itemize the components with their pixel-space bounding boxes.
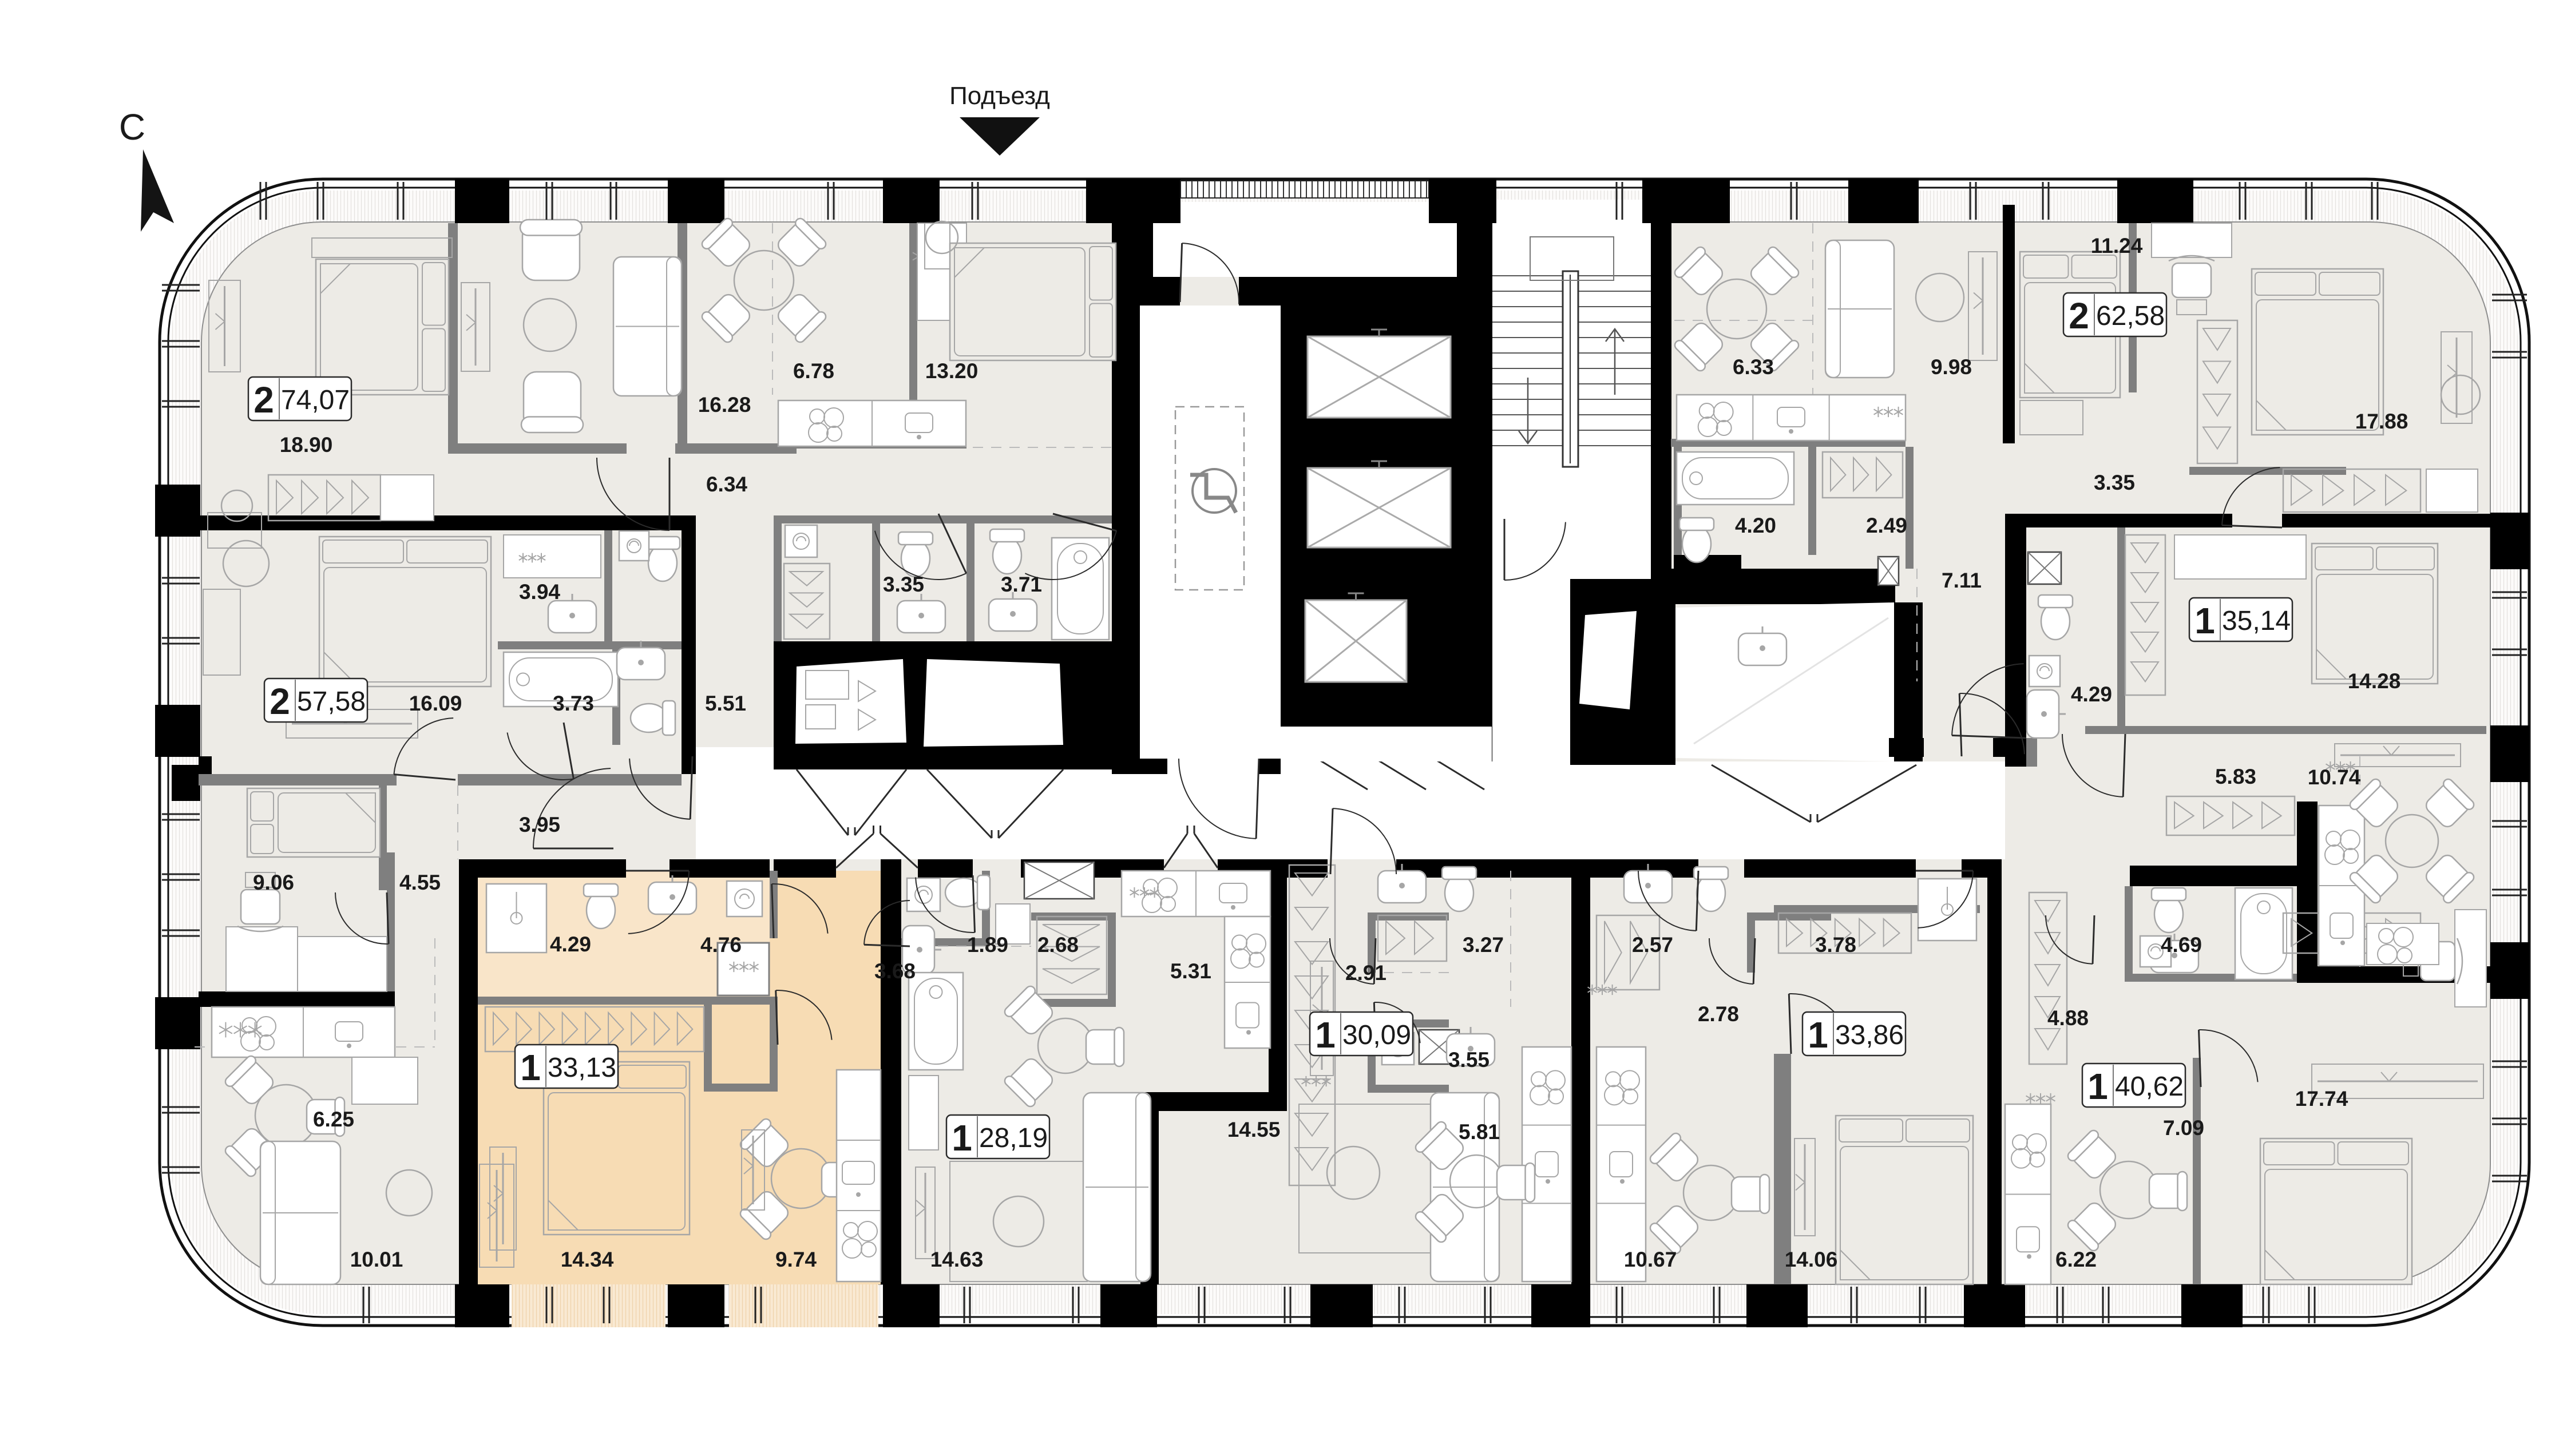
- svg-text:10.74: 10.74: [2308, 765, 2361, 789]
- svg-text:6.22: 6.22: [2055, 1248, 2097, 1271]
- svg-text:4.69: 4.69: [2161, 933, 2202, 957]
- svg-text:3.68: 3.68: [874, 959, 916, 983]
- svg-text:4.76: 4.76: [700, 933, 742, 957]
- svg-text:2.68: 2.68: [1037, 933, 1079, 957]
- svg-text:30,09: 30,09: [1342, 1020, 1411, 1050]
- svg-text:2.57: 2.57: [1632, 933, 1673, 957]
- svg-text:5.31: 5.31: [1170, 959, 1211, 983]
- svg-text:2: 2: [253, 379, 274, 420]
- svg-text:10.67: 10.67: [1624, 1248, 1677, 1271]
- svg-text:6.78: 6.78: [793, 359, 834, 383]
- svg-text:1: 1: [1808, 1014, 1828, 1056]
- svg-text:11.24: 11.24: [2091, 234, 2143, 257]
- svg-text:3.27: 3.27: [1463, 933, 1504, 957]
- svg-text:2.91: 2.91: [1345, 961, 1387, 985]
- svg-text:6.25: 6.25: [313, 1108, 354, 1131]
- svg-text:1: 1: [952, 1117, 972, 1159]
- svg-text:2: 2: [2069, 295, 2089, 336]
- svg-text:57,58: 57,58: [297, 687, 366, 717]
- svg-text:3.35: 3.35: [883, 573, 924, 596]
- svg-text:5.51: 5.51: [705, 692, 746, 715]
- svg-text:3.71: 3.71: [1001, 573, 1042, 596]
- svg-text:4.29: 4.29: [2071, 683, 2112, 706]
- svg-text:5.81: 5.81: [1459, 1120, 1500, 1144]
- svg-text:3.55: 3.55: [1448, 1048, 1490, 1072]
- svg-text:74,07: 74,07: [281, 385, 350, 415]
- svg-text:3.94: 3.94: [519, 580, 560, 604]
- svg-text:18.90: 18.90: [280, 433, 333, 457]
- svg-text:1.89: 1.89: [967, 933, 1008, 957]
- svg-text:40,62: 40,62: [2115, 1072, 2184, 1102]
- svg-text:17.74: 17.74: [2295, 1087, 2348, 1110]
- svg-text:1: 1: [520, 1047, 541, 1088]
- svg-text:62,58: 62,58: [2096, 301, 2165, 331]
- svg-text:2: 2: [270, 681, 290, 722]
- svg-text:1: 1: [1315, 1014, 1336, 1056]
- svg-text:9.74: 9.74: [775, 1248, 817, 1271]
- svg-text:9.98: 9.98: [1931, 355, 1972, 379]
- svg-text:10.01: 10.01: [350, 1248, 403, 1271]
- svg-text:7.11: 7.11: [1942, 569, 1982, 592]
- svg-text:3.35: 3.35: [2094, 471, 2135, 494]
- svg-text:9.06: 9.06: [253, 871, 294, 894]
- svg-text:14.06: 14.06: [1785, 1248, 1838, 1271]
- svg-text:2.49: 2.49: [1866, 514, 1907, 537]
- svg-text:7.09: 7.09: [2163, 1116, 2204, 1140]
- svg-text:17.88: 17.88: [2355, 410, 2408, 433]
- svg-text:6.34: 6.34: [706, 473, 747, 496]
- svg-text:16.09: 16.09: [409, 692, 462, 715]
- svg-text:4.29: 4.29: [550, 933, 591, 956]
- svg-text:14.34: 14.34: [561, 1248, 614, 1271]
- svg-text:3.78: 3.78: [1815, 933, 1856, 957]
- svg-text:14.28: 14.28: [2348, 669, 2401, 693]
- svg-text:4.88: 4.88: [2047, 1006, 2089, 1030]
- svg-text:16.28: 16.28: [698, 393, 751, 416]
- svg-text:1: 1: [2087, 1066, 2108, 1107]
- svg-text:С: С: [119, 106, 145, 148]
- svg-text:1: 1: [2194, 600, 2215, 641]
- svg-text:3.95: 3.95: [519, 813, 560, 836]
- svg-text:33,13: 33,13: [548, 1053, 616, 1083]
- svg-text:3.73: 3.73: [553, 692, 594, 715]
- svg-text:2.78: 2.78: [1698, 1002, 1739, 1026]
- svg-text:4.20: 4.20: [1735, 514, 1776, 537]
- svg-text:14.63: 14.63: [930, 1248, 984, 1271]
- svg-text:13.20: 13.20: [925, 359, 979, 383]
- svg-text:5.83: 5.83: [2215, 765, 2256, 788]
- svg-text:28,19: 28,19: [979, 1123, 1048, 1153]
- svg-text:6.33: 6.33: [1733, 355, 1774, 379]
- svg-text:14.55: 14.55: [1227, 1118, 1281, 1141]
- svg-text:35,14: 35,14: [2222, 606, 2291, 636]
- svg-text:Подъезд: Подъезд: [949, 82, 1050, 110]
- svg-text:33,86: 33,86: [1835, 1020, 1904, 1050]
- svg-text:4.55: 4.55: [399, 871, 441, 894]
